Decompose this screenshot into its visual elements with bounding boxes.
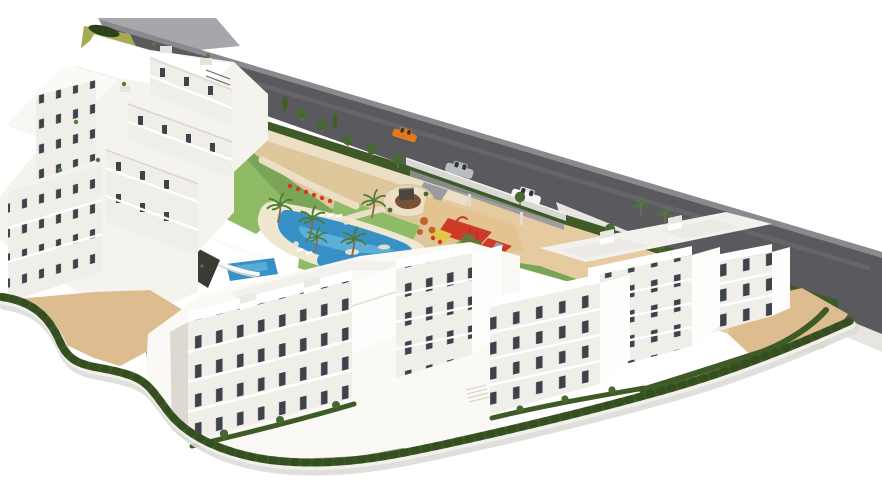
monument-sign bbox=[399, 188, 415, 200]
render-canvas bbox=[0, 0, 882, 504]
cypress-icon bbox=[282, 95, 287, 111]
architectural-render bbox=[0, 0, 882, 504]
parasol bbox=[343, 219, 349, 225]
